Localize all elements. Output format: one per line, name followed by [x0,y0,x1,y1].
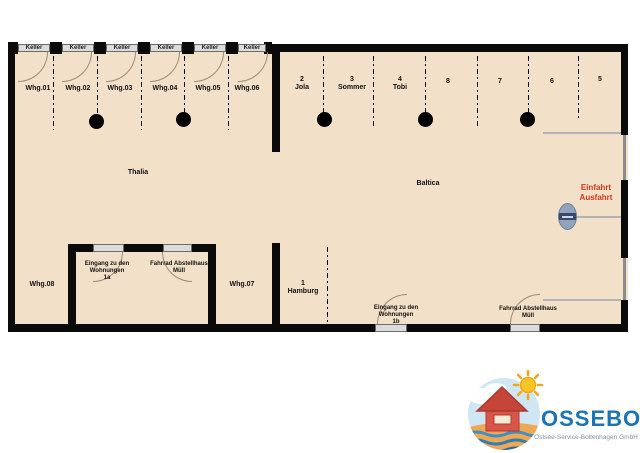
keller-door: Keller [238,44,266,52]
room-wall-right [208,246,216,324]
unit-label-whg01: Whg.01 [16,85,60,93]
keller-door: Keller [194,44,226,52]
spot-number: 6 [527,78,577,86]
keller-door: Keller [18,44,50,52]
parking-divider-line [477,56,478,128]
entrance-1a-line3: 1a [71,275,143,282]
keller-wall-post [226,42,238,54]
parking-spot-7: 7 [475,78,525,86]
entrance-1a-label: Eingang zu den Wohnungen 1a [71,261,143,282]
entrance-door-1a [93,244,124,252]
support-pillar [418,112,433,127]
spot-number: 5 [575,76,625,84]
support-pillar [317,112,332,127]
support-pillar [89,114,104,129]
room-wall-top [68,244,93,252]
entry-exit-label: Einfahrt Ausfahrt [560,183,632,203]
spot-number: 3 [327,76,377,84]
unit-label-whg06: Whg.06 [225,85,269,93]
bike-shed-line2: Müll [143,268,215,275]
spot-number: 4 [375,76,425,84]
unit-label-whg04: Whg.04 [143,85,187,93]
bike-shed-door-baltica [510,324,540,332]
keller-label: Keller [114,45,131,51]
bike-shed-line1: Fahrrad Abstellhaus [492,306,564,313]
gate-opening-upper [623,135,626,180]
room-wall-top [124,244,163,252]
building-label-baltica: Baltica [398,180,458,188]
outer-wall-right-lower [621,300,628,332]
spot-number: 2 [277,76,327,84]
keller-wall-post [50,42,62,54]
outer-wall-right-upper [621,44,628,135]
gate-lock-slot [562,216,573,218]
outer-wall-left [8,44,15,332]
parking-spot-6: 6 [527,78,577,86]
keller-label: Keller [26,45,43,51]
keller-wall-post [138,42,150,54]
parking-spot-8: 8 [423,78,473,86]
gate-opening-lower [623,258,626,300]
spot-number: 7 [475,78,525,86]
entry-line: Einfahrt [560,183,632,193]
keller-door: Keller [150,44,182,52]
parking-spot-4: 4 Tobi [375,76,425,92]
outer-wall-top-right-building [272,44,628,52]
spot-name: Jola [277,84,327,92]
parking-spot-1: 1 Hamburg [273,280,333,296]
bike-shed-line1: Fahrrad Abstellhaus [143,261,215,268]
room-wall-top [192,244,216,252]
keller-door: Keller [62,44,94,52]
parking-spot-5: 5 [575,76,625,84]
unit-label-whg08: Whg.08 [17,281,67,289]
spot-number: 1 [273,280,333,288]
entrance-1b-line3: 1b [360,319,432,326]
keller-door: Keller [106,44,138,52]
keller-label: Keller [70,45,87,51]
keller-wall-post [8,42,18,54]
parking-spot-2: 2 Jola [277,76,327,92]
parking-spot-3: 3 Sommer [327,76,377,92]
parking-divider-line [327,247,328,323]
gate-barrier-lower [575,216,621,218]
parking-divider-line [578,56,579,118]
exit-line: Ausfahrt [560,193,632,203]
entrance-1b-line1: Eingang zu den [360,305,432,312]
building-label-thalia: Thalia [108,169,168,177]
keller-label: Keller [244,45,261,51]
keller-label: Keller [202,45,219,51]
unit-label-whg02: Whg.02 [56,85,100,93]
keller-wall-post [94,42,106,54]
bike-shed-label-baltica: Fahrrad Abstellhaus Müll [492,306,564,320]
entrance-1b-line2: Wohnungen [360,312,432,319]
support-pillar [176,112,191,127]
unit-label-whg07: Whg.07 [217,281,267,289]
entrance-1b-label: Eingang zu den Wohnungen 1b [360,305,432,326]
support-pillar [520,112,535,127]
keller-label: Keller [158,45,175,51]
gate-barrier-upper [543,132,621,134]
entrance-1a-line1: Eingang zu den [71,261,143,268]
company-subtitle: Ostsee-Service-Boltenhagen GmbH [534,434,638,441]
spot-number: 8 [423,78,473,86]
spot-name: Sommer [327,84,377,92]
unit-label-whg03: Whg.03 [98,85,142,93]
bike-area-partition [543,299,621,301]
entrance-1a-line2: Wohnungen [71,268,143,275]
middle-wall-upper [272,44,280,152]
keller-wall-post [182,42,194,54]
spot-name: Tobi [375,84,425,92]
spot-name: Hamburg [273,288,333,296]
floor-plan: Keller Keller Keller Keller Keller Kelle… [0,0,640,453]
company-brand: OSSEBO [541,406,640,432]
unit-label-whg05: Whg.05 [186,85,230,93]
bike-shed-line2: Müll [492,313,564,320]
room-wall-left [68,246,76,324]
bike-shed-door [163,244,192,252]
bike-shed-label: Fahrrad Abstellhaus Müll [143,261,215,275]
